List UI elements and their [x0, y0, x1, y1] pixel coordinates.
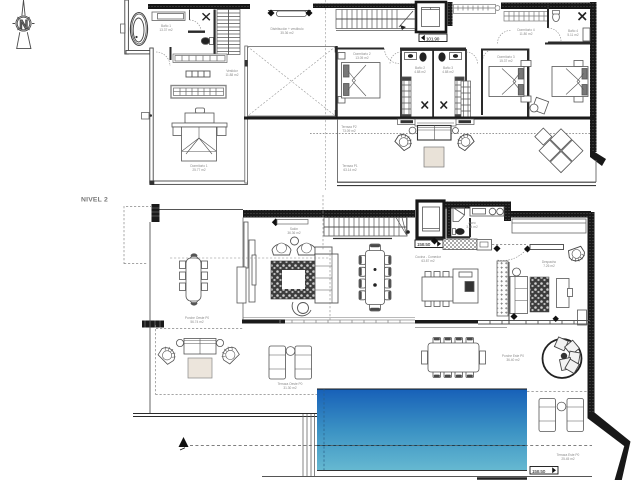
svg-text:7.26 m2: 7.26 m2	[543, 264, 555, 268]
svg-text:5.11 m2: 5.11 m2	[567, 33, 579, 37]
svg-text:158.50: 158.50	[532, 469, 546, 474]
svg-text:158.50: 158.50	[417, 242, 431, 247]
svg-text:35.36 m2: 35.36 m2	[280, 31, 294, 35]
svg-text:63.14 m2: 63.14 m2	[343, 168, 357, 172]
svg-text:36.36 m2: 36.36 m2	[287, 231, 301, 235]
svg-text:73.09 m2: 73.09 m2	[342, 129, 356, 133]
svg-text:31.30 m2: 31.30 m2	[283, 386, 297, 390]
svg-text:25.77 m2: 25.77 m2	[192, 168, 206, 172]
svg-text:25.45 m2: 25.45 m2	[561, 457, 575, 461]
svg-text:13.37 m2: 13.37 m2	[159, 28, 173, 32]
svg-text:4.88 m2: 4.88 m2	[414, 70, 426, 74]
svg-text:3.84 m2: 3.84 m2	[466, 225, 478, 229]
svg-text:63.87 m2: 63.87 m2	[421, 259, 435, 263]
svg-text:11.80 m2: 11.80 m2	[519, 32, 532, 36]
svg-text:11.88 m2: 11.88 m2	[225, 73, 238, 77]
svg-text:15.37 m2: 15.37 m2	[499, 59, 513, 63]
svg-text:13.05 m2: 13.05 m2	[355, 56, 369, 60]
svg-text:101.90: 101.90	[426, 36, 440, 41]
svg-text:NIVEL 2: NIVEL 2	[81, 197, 108, 204]
svg-text:56.74 m2: 56.74 m2	[190, 320, 204, 324]
svg-text:36.40 m2: 36.40 m2	[506, 358, 520, 362]
svg-text:4.88 m2: 4.88 m2	[442, 70, 454, 74]
svg-text:N: N	[19, 18, 28, 32]
